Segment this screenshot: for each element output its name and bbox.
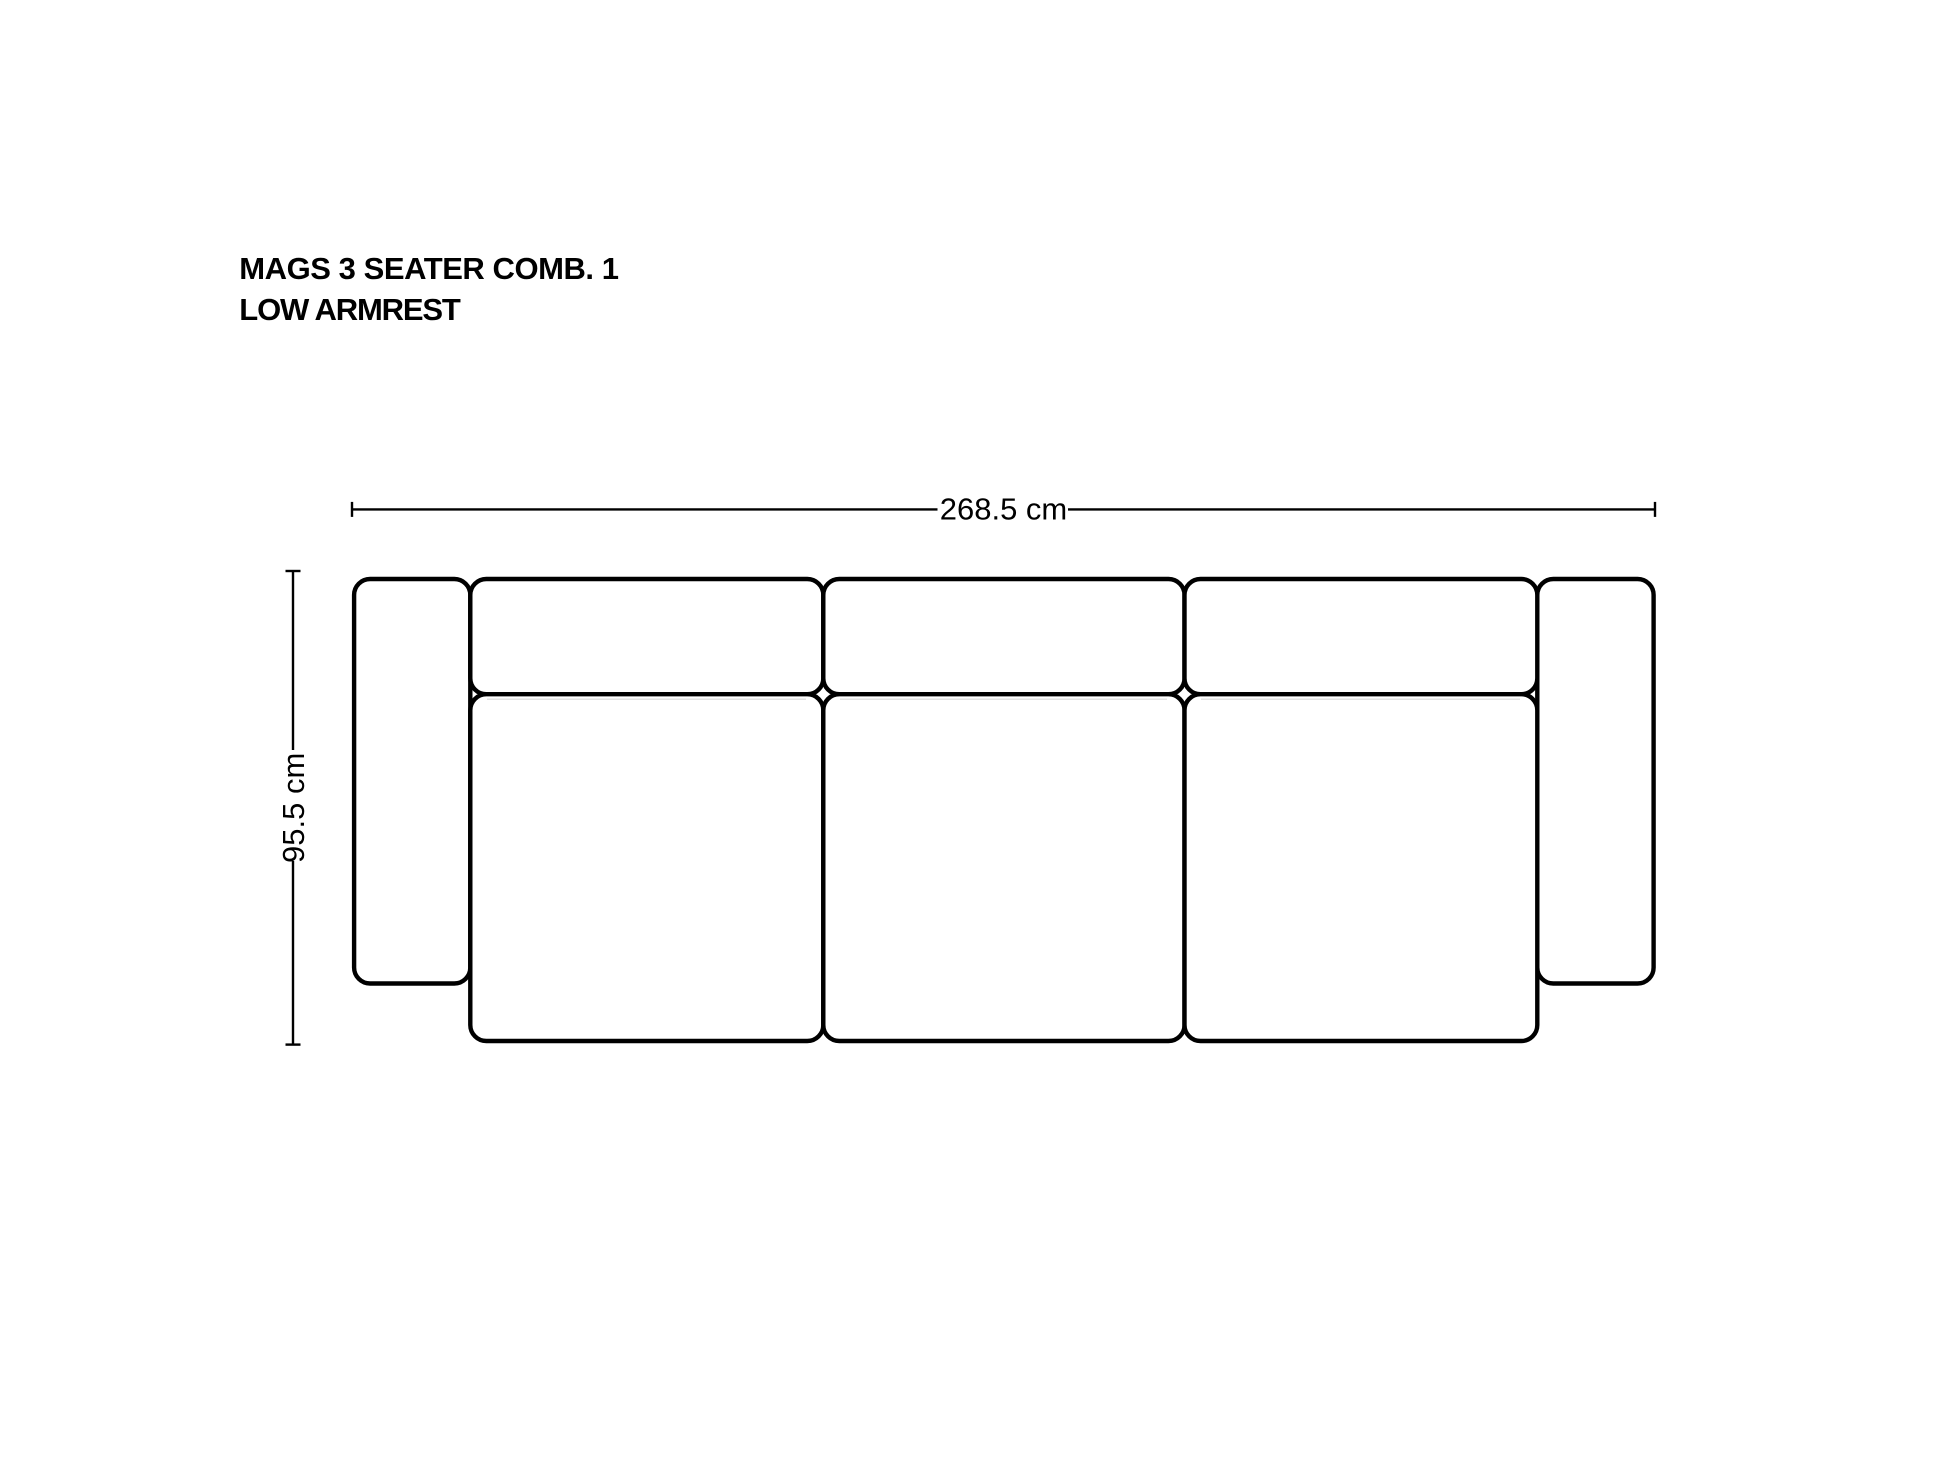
svg-text:268.5 cm: 268.5 cm	[940, 492, 1068, 527]
svg-text:MAGS 3 SEATER COMB. 1: MAGS 3 SEATER COMB. 1	[239, 251, 618, 286]
svg-text:95.5 cm: 95.5 cm	[276, 753, 311, 863]
svg-text:LOW ARMREST: LOW ARMREST	[239, 292, 461, 327]
